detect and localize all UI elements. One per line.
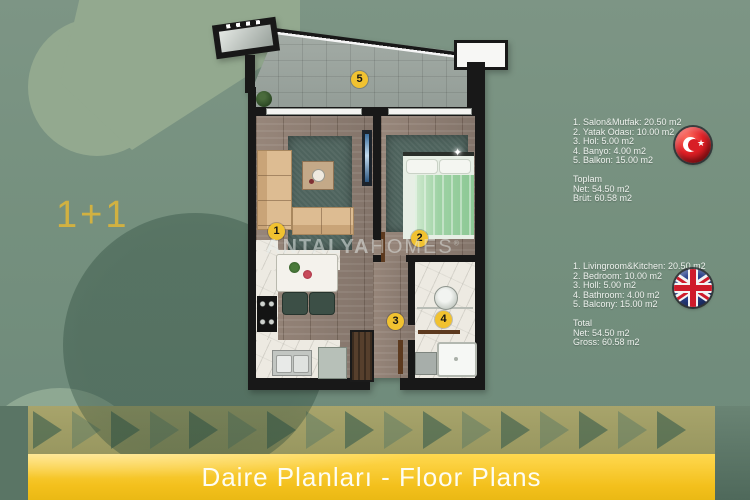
table-flowers-icon: [303, 270, 312, 279]
chevron-triangle-icon: [501, 411, 530, 449]
chevron-triangle-icon: [384, 411, 413, 449]
shower-drain: [454, 357, 458, 361]
page-title: Daire Planları - Floor Plans: [28, 454, 715, 500]
washer-space: [415, 352, 437, 375]
room-number-badge: 3: [387, 313, 404, 330]
coffee-table: [302, 161, 334, 190]
chevron-triangle-icon: [657, 411, 686, 449]
wall-bathroom-left-upper: [408, 262, 415, 325]
wall-bottom-right: [400, 378, 485, 390]
chair: [282, 292, 308, 315]
legend-summary-line: Brüt: 60.58 m2: [573, 194, 748, 204]
bathroom-sink: [434, 286, 458, 310]
legend-english: 1. Livingroom&Kitchen: 20.50 m2 2. Bedro…: [573, 262, 748, 348]
flyer-canvas: 1+1: [0, 0, 750, 500]
room-number-badge: 5: [351, 71, 368, 88]
brand-watermark-bold: ANTALYA: [266, 236, 370, 258]
chevron-triangle-icon: [540, 411, 569, 449]
legend-item: 5. Balkon: 15.00 m2: [573, 156, 748, 166]
chair: [309, 292, 335, 315]
uk-flag-cross-red: [674, 285, 712, 291]
registered-mark: ®: [454, 240, 461, 247]
turkey-flag-icon: ★: [675, 127, 711, 163]
sofa-bottom: [292, 207, 354, 235]
chevron-triangle-icon: [423, 411, 452, 449]
chevron-triangle-icon: [33, 411, 62, 449]
unit-type-label: 1+1: [56, 194, 129, 237]
floor-plan: ✦ 1 2 3 4 5: [215, 15, 505, 395]
legend-turkish: 1. Salon&Mutfak: 20.50 m2 2. Yatak Odası…: [573, 118, 748, 204]
uk-flag-icon: [674, 269, 712, 307]
chevron-triangle-icon: [618, 411, 647, 449]
chevron-triangle-icon: [579, 411, 608, 449]
wall-living-bedroom: [373, 116, 381, 240]
bedroom-window: [388, 108, 472, 115]
coffee-table-item: [309, 179, 314, 184]
tv-unit: [362, 130, 372, 186]
right-edge-panel: [715, 406, 750, 500]
chevron-triangle-icon: [345, 411, 374, 449]
bed-pillow: [406, 159, 438, 174]
bed: [403, 152, 474, 239]
legend-summary-line: Gross: 60.58 m2: [573, 338, 748, 348]
sofa-left: [257, 150, 292, 230]
tv-screen: [365, 134, 369, 182]
sink-basin: [276, 355, 292, 373]
wall-left: [248, 87, 256, 390]
facade-detail-left-glass: [219, 24, 273, 52]
bed-blanket: [415, 175, 474, 235]
bathroom-door-leaf: [418, 330, 460, 334]
sparkle-icon: ✦: [453, 146, 462, 159]
kitchen-sink: [272, 350, 312, 376]
star-icon: ★: [697, 139, 705, 148]
left-edge-strip: [0, 406, 28, 500]
shower-tray: [437, 342, 477, 377]
fridge: [318, 347, 347, 379]
sink-basin: [293, 355, 309, 373]
room-number-badge: 4: [435, 311, 452, 328]
entry-closet: [350, 330, 374, 382]
bed-pillow: [439, 159, 471, 174]
chevron-triangle-icon: [462, 411, 491, 449]
entrance-door-leaf: [398, 340, 403, 374]
title-bar: Daire Planları - Floor Plans: [28, 454, 715, 500]
table-plant-icon: [289, 262, 300, 273]
wall-bathroom-left-lower: [408, 340, 415, 378]
plant-icon: [256, 91, 272, 107]
brand-watermark-light: HOMES: [370, 236, 453, 258]
legend-item: 5. Balcony: 15.00 m2: [573, 300, 748, 310]
brand-watermark: ANTALYAHOMES®: [266, 236, 506, 259]
chevron-triangle-icon: [306, 411, 335, 449]
living-window: [266, 108, 362, 115]
dining-table: [276, 254, 338, 292]
cooktop: [257, 296, 277, 332]
